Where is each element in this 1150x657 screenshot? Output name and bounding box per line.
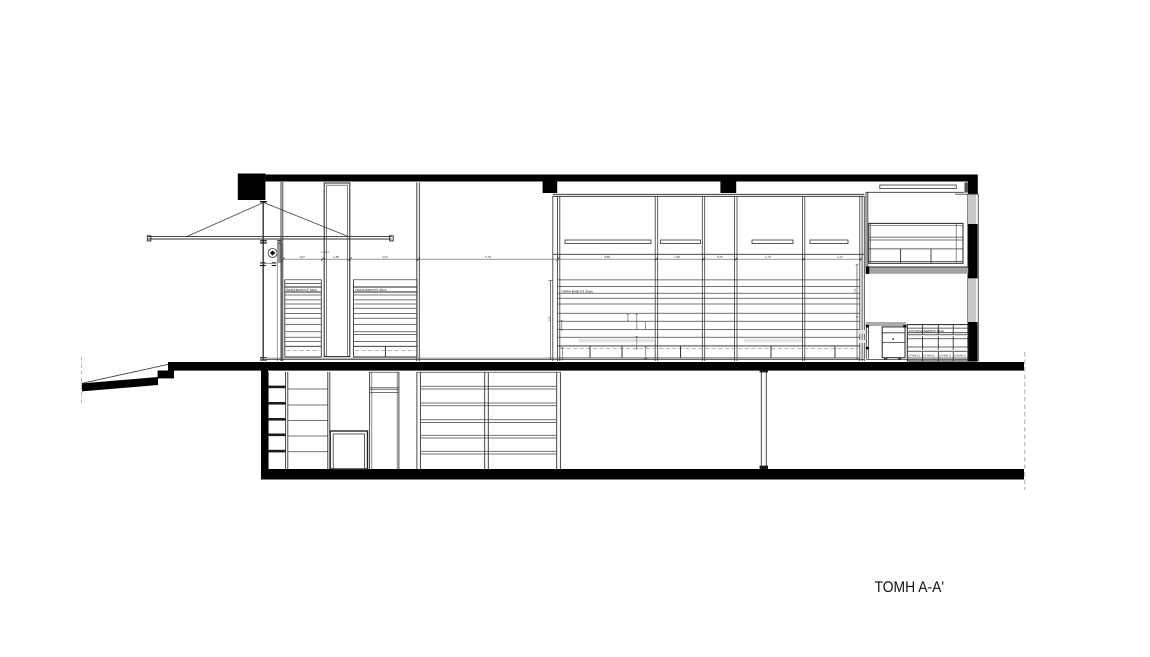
svg-text:1,30: 1,30 xyxy=(674,255,680,259)
svg-text:ΣΥΡΤΑΡΙΑ ΒΑΘΟΥΣ 60cm: ΣΥΡΤΑΡΙΑ ΒΑΘΟΥΣ 60cm xyxy=(909,329,945,333)
svg-text:1,97: 1,97 xyxy=(382,255,388,259)
svg-text:ΤΟΜΗ Α-Α': ΤΟΜΗ Α-Α' xyxy=(875,579,945,596)
svg-text:ΠΑΦΙΑ ΒΑΘΟΥΣ 35cm: ΠΑΦΙΑ ΒΑΘΟΥΣ 35cm xyxy=(562,289,594,293)
svg-text:2,30: 2,30 xyxy=(548,316,551,321)
svg-text:ΠΑΦΙΑ ΒΑΘΟΥΣ 45cm: ΠΑΦΙΑ ΒΑΘΟΥΣ 45cm xyxy=(355,288,387,292)
svg-text:ΣΤΗΛΗ 4: ΣΤΗΛΗ 4 xyxy=(954,353,966,357)
svg-text:4,07: 4,07 xyxy=(299,255,305,259)
svg-text:2,74: 2,74 xyxy=(854,288,857,293)
svg-text:ΠΑΦΙΑ ΒΑΘΟΥΣ 34cm: ΠΑΦΙΑ ΒΑΘΟΥΣ 34cm xyxy=(286,288,318,292)
svg-text:+1,60m: +1,60m xyxy=(321,251,331,254)
svg-text:ΣΤΗΛΗ 1: ΣΤΗΛΗ 1 xyxy=(908,353,920,357)
svg-text:1,47: 1,47 xyxy=(837,255,843,259)
svg-text:5,79: 5,79 xyxy=(485,255,491,259)
svg-text:1,48: 1,48 xyxy=(333,255,339,259)
svg-text:ΣΤΗΛΗ 2: ΣΤΗΛΗ 2 xyxy=(923,353,935,357)
svg-text:0,75: 0,75 xyxy=(717,255,723,259)
svg-text:ΣΤΗΛΗ 3: ΣΤΗΛΗ 3 xyxy=(939,353,951,357)
svg-text:1,73: 1,73 xyxy=(765,255,771,259)
svg-text:3,66: 3,66 xyxy=(604,255,610,259)
